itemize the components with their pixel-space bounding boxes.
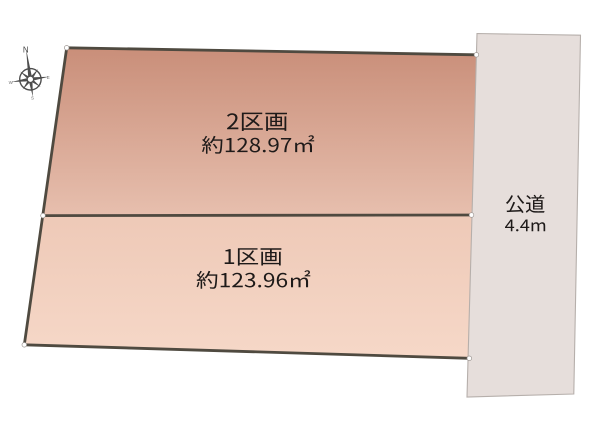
svg-text:W: W [9,80,14,85]
svg-text:S: S [31,96,34,101]
svg-text:N: N [23,46,29,55]
svg-text:E: E [47,75,50,80]
